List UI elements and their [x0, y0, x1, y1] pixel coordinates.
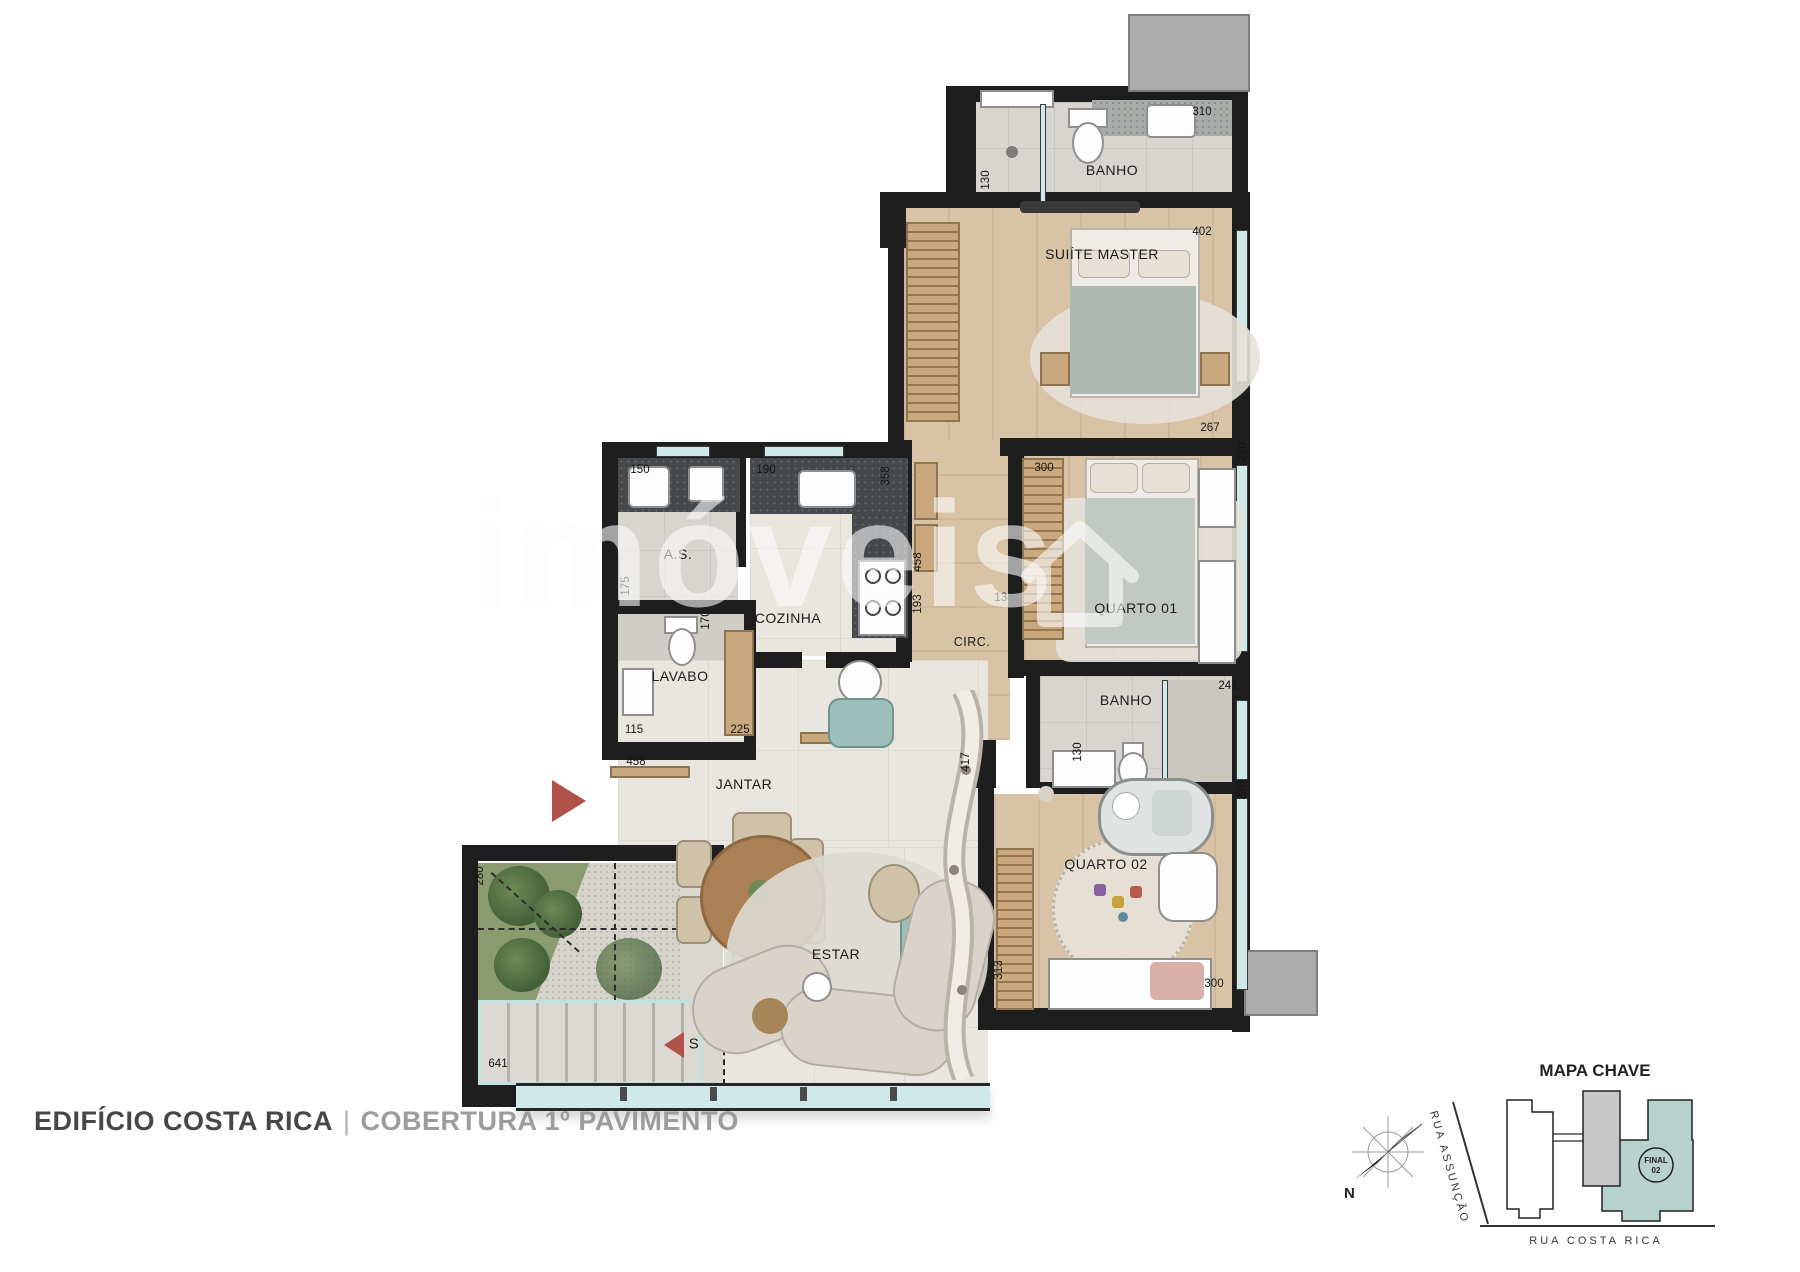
desk-shelf [1198, 560, 1236, 664]
entry-arrow-icon [552, 780, 586, 822]
room-label-lavabo: LAVABO [652, 668, 709, 684]
window-icon [1236, 700, 1248, 780]
wall-terrace-corner [462, 1085, 520, 1107]
floorplan-page: S [0, 0, 1800, 1272]
window-icon [1236, 798, 1248, 990]
toy-icon [1094, 884, 1106, 896]
toilet-icon [1072, 122, 1104, 164]
ac-unit-icon [1020, 201, 1140, 213]
laundry-sink-icon [688, 466, 724, 502]
window-mullion [710, 1087, 717, 1101]
plan-title: EDIFÍCIO COSTA RICA|COBERTURA 1º PAVIMEN… [34, 1106, 739, 1137]
dim-label: 402 [1192, 226, 1211, 238]
key-map-title: MAPA CHAVE [1539, 1061, 1650, 1080]
wall [602, 442, 618, 614]
teal-armchair-icon [828, 698, 894, 748]
dim-label: 193 [912, 594, 924, 613]
keymap-core [1583, 1091, 1620, 1186]
burner-icon [885, 600, 901, 616]
toilet-icon [668, 628, 696, 666]
toy-icon [1118, 912, 1128, 922]
window-mullion [890, 1087, 897, 1101]
shower-glass [1162, 680, 1168, 784]
wall [978, 1008, 1248, 1030]
title-building: EDIFÍCIO COSTA RICA [34, 1106, 333, 1136]
console-table [914, 462, 938, 520]
room-label-circ: CIRC. [954, 635, 991, 649]
room-label-estar: ESTAR [812, 946, 860, 962]
shaft-block [1128, 14, 1250, 92]
pillow-icon [1090, 463, 1138, 493]
dim-label: 310 [1192, 106, 1211, 118]
street-bottom-label: RUA COSTA RICA [1529, 1235, 1662, 1247]
suite-wardrobe [906, 222, 960, 422]
plant-icon [494, 938, 550, 992]
title-separator: | [333, 1106, 361, 1136]
wall [602, 655, 618, 747]
window-mullion [620, 1087, 627, 1101]
watermark-house-icon [1010, 498, 1150, 638]
dim-label: 130 [1072, 742, 1084, 761]
dim-label: 313 [993, 960, 1005, 979]
window-icon [656, 446, 710, 457]
toy-icon [1112, 896, 1124, 908]
dim-label: 225 [730, 724, 749, 736]
shaft-block [1244, 950, 1318, 1016]
keymap-unit-badge [1639, 1148, 1673, 1182]
wall [602, 600, 754, 614]
room-label-cozinha: COZINHA [755, 610, 822, 626]
burner-icon [865, 600, 881, 616]
room-label-suite: SUIÍTE MASTER [1045, 246, 1159, 262]
dim-label: 300 [1204, 978, 1223, 990]
shower-glass [1040, 104, 1046, 202]
crib-pillow-icon [1112, 792, 1140, 820]
dim-label: 115 [625, 724, 643, 736]
vanity-sink-icon [622, 668, 654, 716]
keymap-wing-left [1507, 1100, 1553, 1218]
crib-blanket-icon [1152, 790, 1192, 836]
compass-needle-icon [1354, 1152, 1388, 1180]
kitchen-sink-icon [798, 470, 856, 508]
unit-badge-line2: 02 [1652, 1166, 1661, 1175]
vanity-sink-icon [1052, 750, 1116, 788]
pergola-dash-line [478, 928, 678, 930]
dim-label: 458 [626, 756, 645, 768]
window-icon [764, 446, 844, 457]
stair-direction-arrow-icon [664, 1032, 684, 1058]
floor-lamp-icon [1038, 786, 1054, 802]
side-table-icon [802, 972, 832, 1002]
window-mullion [800, 1087, 807, 1101]
dim-label: 641 [488, 1058, 507, 1070]
shower-head-icon [1006, 146, 1018, 158]
nightstand-icon [1040, 352, 1070, 386]
pillow-icon [1142, 463, 1190, 493]
wall [1000, 438, 1248, 456]
dim-label: 175 [620, 576, 632, 595]
nightstand-icon [1200, 352, 1230, 386]
coffee-table-icon [752, 998, 788, 1034]
toy-icon [1130, 886, 1142, 898]
stair-label: S [689, 1036, 700, 1053]
dim-label: 190 [756, 464, 775, 476]
sideboard [610, 766, 690, 778]
kitchen-tall-cabinet [724, 630, 754, 736]
dim-label: 417 [960, 752, 972, 771]
compass-north-label: N [1344, 1185, 1355, 1202]
sink-icon [1146, 104, 1196, 138]
dresser [1198, 468, 1236, 528]
room-label-quarto2: QUARTO 02 [1064, 856, 1147, 872]
armchair-icon [1158, 852, 1218, 922]
keymap-connector [1553, 1134, 1585, 1141]
room-label-jantar: JANTAR [716, 776, 772, 792]
wall [1232, 86, 1248, 206]
dim-label: 270 [1237, 442, 1249, 461]
burner-icon [865, 568, 881, 584]
dim-label: 150 [630, 464, 649, 476]
dim-label: 241 [1218, 680, 1237, 692]
dim-label: 170 [700, 610, 712, 629]
wall [888, 195, 904, 445]
dim-label: 458 [912, 552, 924, 571]
dim-label: 270 [1236, 780, 1248, 799]
wall [1026, 660, 1040, 788]
burner-icon [885, 568, 901, 584]
curved-divider [936, 690, 1000, 1080]
key-map: MAPA CHAVE N RUA ASSUNÇÃO RUA COSTA RICA… [1330, 1028, 1800, 1272]
room-label-banho2: BANHO [1100, 692, 1152, 708]
room-label-as: A.S. [664, 546, 692, 562]
suite-blanket [1070, 286, 1196, 394]
compass-needle-tail-icon [1388, 1124, 1422, 1152]
pergola-dash-line [614, 863, 616, 1001]
dim-label: 358 [880, 466, 892, 485]
dim-label: 280 [474, 866, 486, 885]
street-left-label: RUA ASSUNÇÃO [1427, 1109, 1472, 1225]
title-floor: COBERTURA 1º PAVIMENTO [361, 1106, 739, 1136]
wall [602, 742, 756, 760]
quarto2-closet [996, 848, 1034, 1010]
shower-area [1168, 680, 1232, 782]
room-label-banho-suite: BANHO [1086, 162, 1138, 178]
unit-badge-line1: FINAL [1644, 1156, 1668, 1165]
dim-label: 300 [1034, 462, 1053, 474]
bush-icon [596, 938, 662, 1000]
dim-label: 130 [980, 170, 992, 189]
bench-cushion-icon [1150, 962, 1204, 1000]
wall [602, 442, 912, 458]
wall [946, 86, 976, 206]
dim-label: 267 [1200, 422, 1219, 434]
